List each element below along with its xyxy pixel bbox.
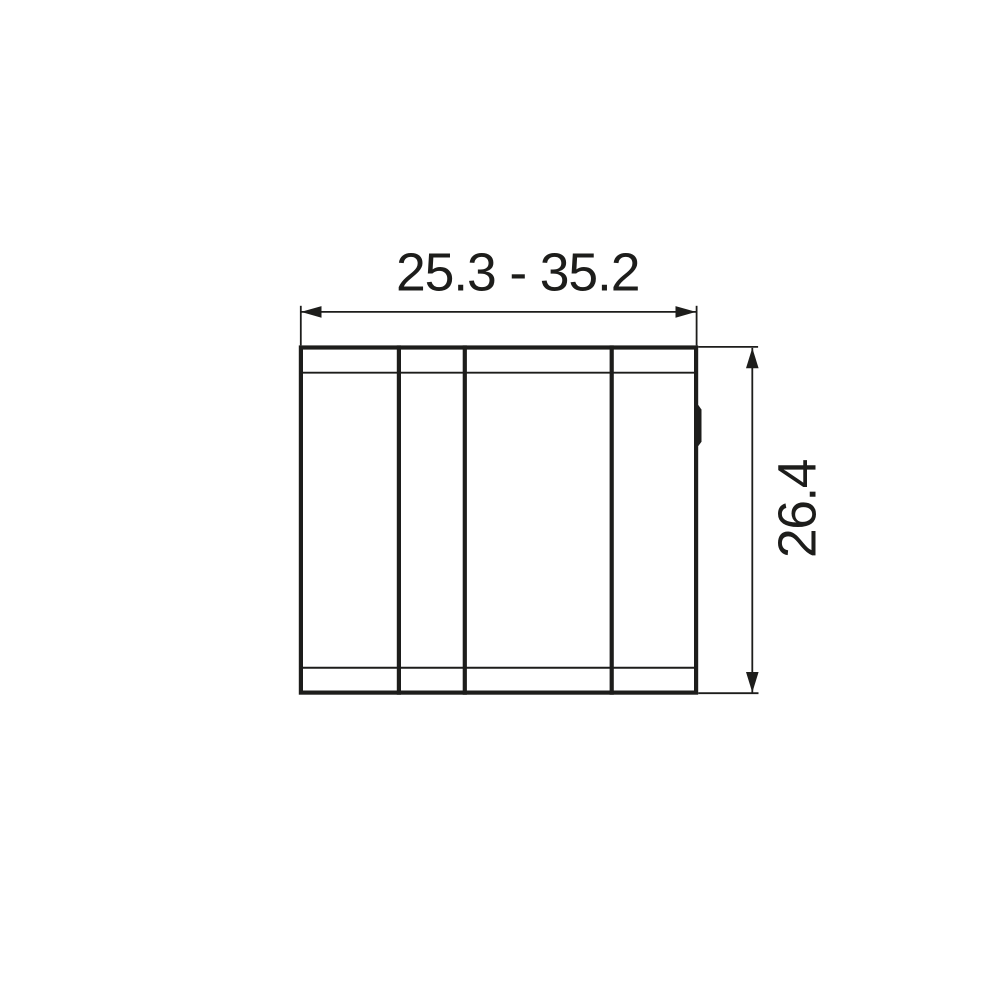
svg-text:25.3 - 35.2: 25.3 - 35.2	[396, 244, 641, 303]
svg-text:26.4: 26.4	[769, 459, 828, 559]
